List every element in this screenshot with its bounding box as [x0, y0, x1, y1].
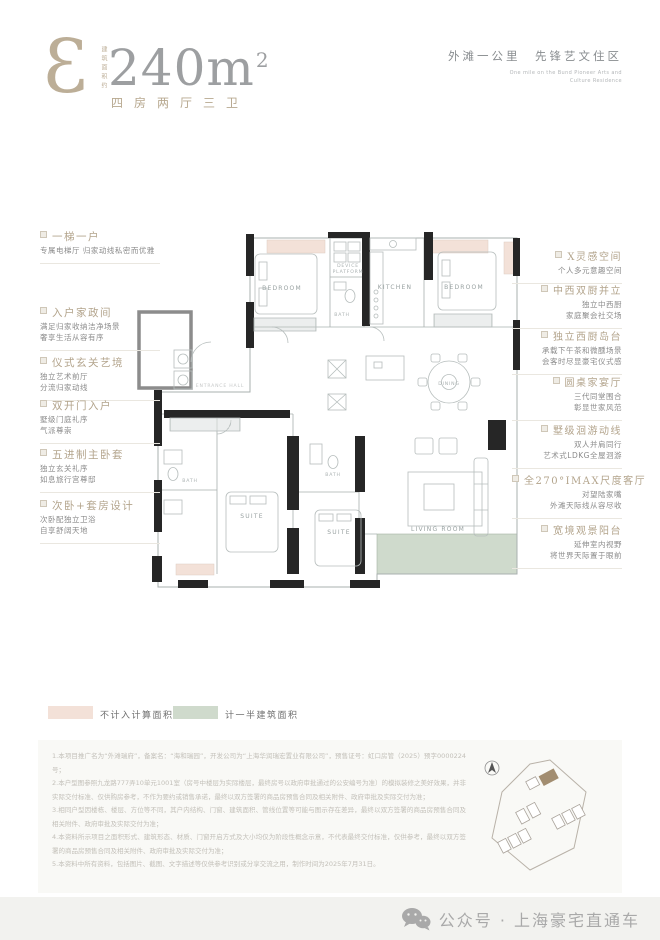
annotation-line: 双人并肩同行 [512, 439, 622, 450]
bullet-icon [40, 231, 47, 238]
bullet-icon [541, 331, 548, 338]
annotation-balcony: 宽境观景阳台 延伸室内视野 将世界天际置于眼前 [512, 524, 622, 569]
annotation-foyer: 仪式玄关艺境 独立艺术前厅 分流归家动线 [40, 356, 160, 401]
annotation-dining: 圆桌家宴厅 三代同堂围合 彰显世家风范 [512, 376, 622, 421]
disclaimer-text: 1.本项目推广名为“外滩瑞府”，备案名：“海和瑞园”，开发公司为“上海华润瑞宏置… [52, 750, 466, 872]
annotation-second-suite: 次卧+套房设计 次卧配独立卫浴 自享舒阔天地 [40, 499, 160, 544]
balcony-area [377, 534, 517, 574]
annotation-master-suite: 五进制主卧套 独立玄关礼序 如息旅行宫尊邸 [40, 448, 160, 493]
site-buildings [498, 768, 586, 853]
annotation-housework-room: 入户家政间 满足归家收纳洁净场景 奢享生活从容有序 [40, 306, 160, 351]
annotation-line: 独立中西厨 [512, 299, 622, 310]
annotation-title: 圆桌家宴厅 [565, 378, 623, 389]
annotation-island: 独立西厨岛台 承载下午茶和微醺场景 会客时尽显豪宅仪式感 [512, 330, 622, 375]
bullet-icon [555, 251, 562, 258]
bullet-icon [40, 449, 47, 456]
room-label-living: LIVING ROOM [411, 526, 465, 533]
annotation-title: 宽境观景阳台 [553, 526, 622, 537]
bullet-icon [512, 475, 519, 482]
annotation-line: 独立玄关礼序 [40, 463, 160, 474]
annotation-line: 分流归家动线 [40, 382, 160, 393]
floor-plan: BEDROOM BATH DEVICE PLATFORM KITCHEN BED… [112, 222, 524, 604]
annotation-line: 将世界天际置于眼前 [512, 550, 622, 561]
annotation-title: 独立西厨岛台 [553, 332, 622, 343]
annotation-line: 墅级门庭礼序 [40, 414, 160, 425]
room-label-device-2: PLATFORM [333, 269, 364, 275]
annotation-line: 气派尊崇 [40, 425, 160, 436]
annotation-circulation: 墅级洄游动线 双人并肩同行 艺术式LDKG全屋洄游 [512, 424, 622, 469]
annotation-line: 承载下午茶和微醺场景 [512, 345, 622, 356]
annotation-line: 外滩天际线从容尽收 [512, 500, 622, 511]
annotation-line: 家庭聚会社交场 [512, 310, 622, 321]
annotation-line: 个人多元意趣空间 [512, 265, 622, 276]
room-label-device-1: DEVICE [337, 263, 359, 269]
room-label-suite2: SUITE [327, 529, 350, 536]
disclaimer-item: 1.本项目推广名为“外滩瑞府”，备案名：“海和瑞园”，开发公司为“上海华润瑞宏置… [52, 750, 466, 777]
legend-swatch-pink [48, 706, 93, 719]
rooms-summary: 四房两厅三卫 [111, 94, 249, 111]
annotation-line: 彰显世家风范 [512, 402, 622, 413]
annotation-line: 专属电梯厅 归家动线私密而优雅 [40, 245, 160, 256]
bullet-icon [40, 307, 47, 314]
footer-wechat-label: 公众号 · 上海豪宅直通车 [439, 907, 640, 931]
annotation-title: X灵感空间 [567, 252, 622, 263]
room-label-bath-left: BATH [182, 478, 197, 484]
poster: 3 建筑面积约 240m2 四房两厅三卫 外滩一公里 先锋艺文住区 One mi… [0, 0, 660, 940]
annotation-title: 双开门入户 [52, 400, 112, 412]
annotation-double-kitchen: 中西双厨并立 独立中西厨 家庭聚会社交场 [512, 284, 622, 329]
footer-bar: 公众号 · 上海豪宅直通车 [0, 897, 660, 940]
bullet-icon [541, 525, 548, 532]
bullet-icon [40, 357, 47, 364]
disclaimer-item: 4.本资料所示项目之面积形式、建筑形态、材质、门窗开启方式及大小均仅为阶段性概念… [52, 831, 466, 858]
annotation-title: 入户家政间 [52, 307, 112, 319]
annotation-title: 五进制主卧套 [52, 449, 124, 461]
room-label-bedroom-tr: BEDROOM [444, 284, 484, 291]
area-number: 240m [108, 39, 255, 97]
bullet-icon [553, 377, 560, 384]
legend-label-pink: 不计入计算面积 [100, 708, 174, 721]
annotation-living-room: 全270°IMAX尺度客厅 对望陆家嘴 外滩天际线从容尽收 [512, 474, 622, 519]
disclaimer-item: 2.本户型图参照九龙路777弄10单元1001室（房号中楼层为实际楼层，最终房号… [52, 777, 466, 804]
bullet-icon [40, 400, 47, 407]
annotation-title: 仪式玄关艺境 [52, 357, 124, 369]
brand-monogram: 3 [42, 30, 89, 104]
bullet-icon [541, 285, 548, 292]
room-label-bath-top: BATH [334, 312, 349, 318]
area-value: 240m2 [108, 32, 270, 96]
area-superscript: 2 [256, 48, 270, 72]
room-label-suite1: SUITE [240, 513, 263, 520]
annotation-line: 对望陆家嘴 [512, 489, 622, 500]
tagline-english: One mile on the Bund Pioneer Arts and Cu… [510, 69, 622, 85]
annotation-line: 自享舒阔天地 [40, 525, 160, 536]
bullet-icon [541, 425, 548, 432]
annotation-double-door: 双开门入户 墅级门庭礼序 气派尊崇 [40, 399, 160, 444]
annotation-elevator: 一梯一户 专属电梯厅 归家动线私密而优雅 [40, 230, 160, 264]
annotation-line: 次卧配独立卫浴 [40, 514, 160, 525]
room-label-dining: DINING [438, 381, 459, 387]
disclaimer-item: 5.本资料中所有资料，包括图片、截图、文字描述等仅供参考识别或分享交流之用，制作… [52, 858, 466, 872]
annotation-line: 如息旅行宫尊邸 [40, 474, 160, 485]
annotation-line: 延伸室内视野 [512, 539, 622, 550]
legend-label-green: 计一半建筑面积 [225, 708, 299, 721]
annotation-line: 独立艺术前厅 [40, 371, 160, 382]
tagline: 外滩一公里 先锋艺文住区 [448, 48, 622, 64]
room-label-kitchen: KITCHEN [378, 284, 412, 291]
annotation-title: 一梯一户 [52, 231, 100, 243]
annotation-title: 墅级洄游动线 [553, 426, 622, 437]
annotation-line: 三代同堂围合 [512, 391, 622, 402]
wechat-icon [401, 907, 431, 931]
site-plan-map [478, 752, 614, 884]
annotation-title: 全270°IMAX尺度客厅 [524, 476, 646, 487]
annotation-line: 满足归家收纳洁净场景 [40, 321, 160, 332]
bullet-icon [40, 500, 47, 507]
legend-swatch-green [173, 706, 218, 719]
area-vertical-label: 建筑面积约 [99, 46, 108, 91]
annotation-line: 奢享生活从容有序 [40, 332, 160, 343]
annotation-title: 中西双厨并立 [553, 286, 622, 297]
room-label-bath-mid: BATH [325, 472, 340, 478]
tagline-english-line2: Culture Residence [510, 77, 622, 85]
disclaimer-item: 3.相同户型因楼栋、楼层、方位等不同，其户内结构、门窗、建筑面积、管线位置等可能… [52, 804, 466, 831]
annotation-line: 会客时尽显豪宅仪式感 [512, 356, 622, 367]
annotation-title: 次卧+套房设计 [52, 500, 134, 512]
room-label-entrance: ENTRANCE HALL [196, 383, 244, 389]
tagline-english-line1: One mile on the Bund Pioneer Arts and [510, 69, 622, 77]
annotation-line: 艺术式LDKG全屋洄游 [512, 450, 622, 461]
room-label-bedroom-tl: BEDROOM [262, 285, 302, 292]
annotation-x-space: X灵感空间 个人多元意趣空间 [512, 250, 622, 284]
north-arrow-icon [485, 761, 499, 775]
